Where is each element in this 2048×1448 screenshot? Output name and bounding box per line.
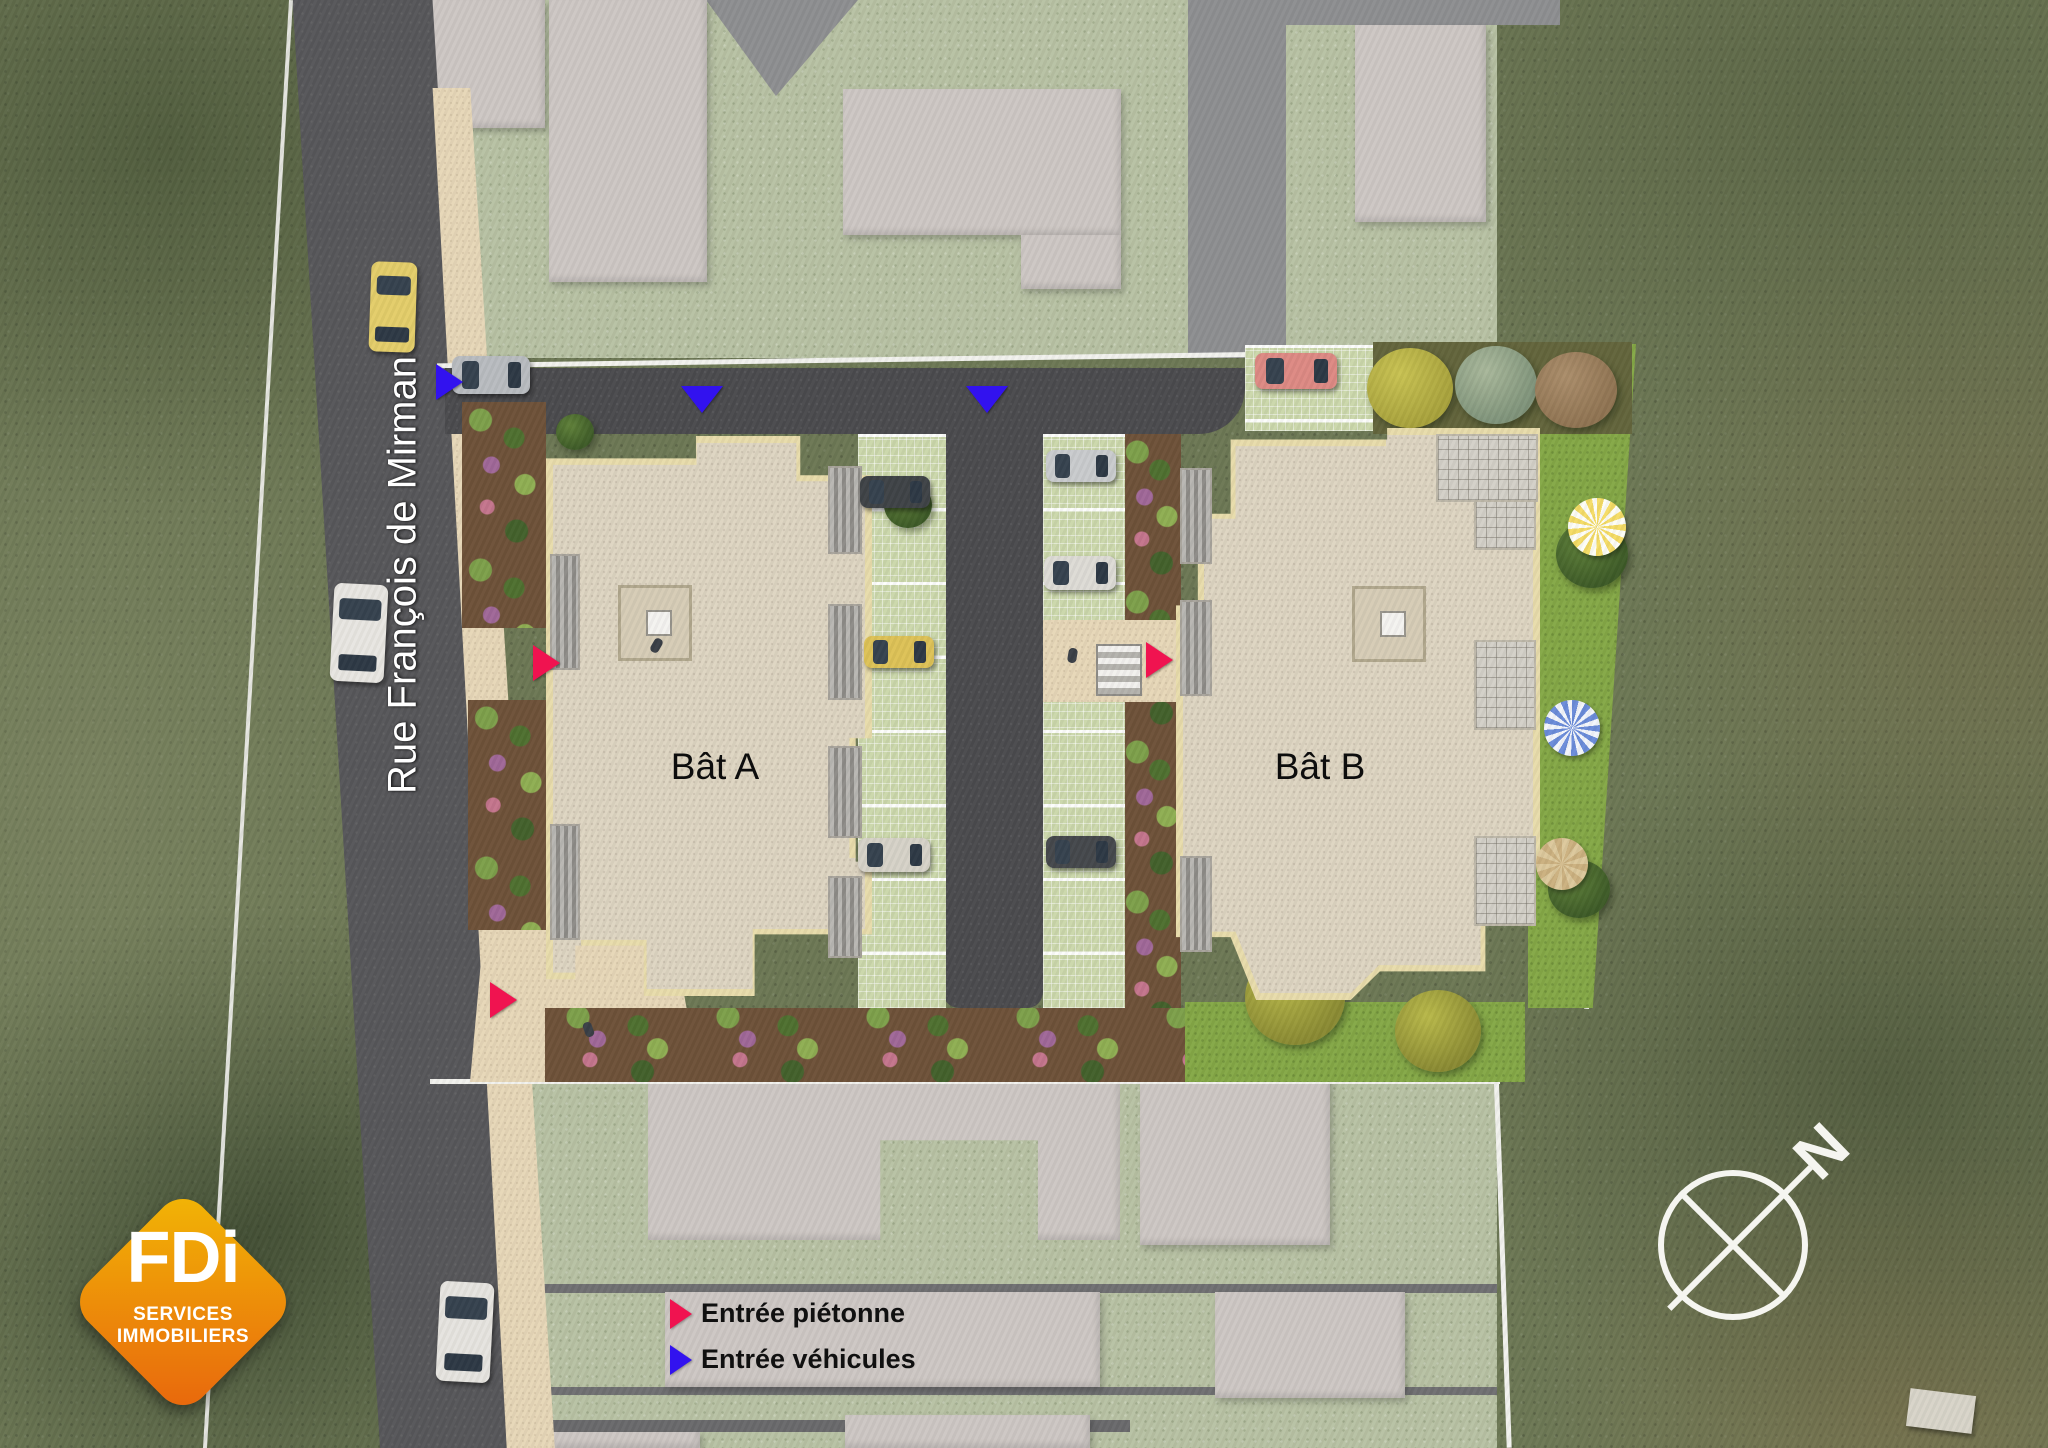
bat-a-terrace [830, 606, 860, 698]
bat-a-terrace [830, 748, 860, 836]
neighbor-building [845, 1415, 1090, 1448]
car-dark [1046, 836, 1116, 868]
bat-b-terrace [1182, 602, 1210, 694]
car-white [1044, 556, 1116, 590]
bat-b-skylight [1380, 611, 1406, 637]
neighbor-building [1215, 1292, 1405, 1398]
fdi-tagline: SERVICES IMMOBILIERS [62, 1304, 304, 1348]
north-driveway [1188, 25, 1286, 358]
compass-ring [1658, 1170, 1808, 1320]
pedestrian-entry-marker [490, 982, 517, 1018]
legend-item-vehicle: Entrée véhicules [670, 1344, 916, 1375]
bat-a-terrace [830, 468, 860, 552]
bat-a-terrace [830, 878, 860, 956]
tree [1395, 990, 1481, 1072]
fdi-logo: FDi SERVICES IMMOBILIERS [62, 1222, 304, 1348]
bat-a-terrace [552, 826, 578, 938]
street-name-label: Rue François de Mirman [381, 356, 426, 794]
north-compass: N [1650, 1118, 1890, 1358]
umbrella-yellow [1568, 498, 1626, 556]
fdi-tagline-line1: SERVICES [62, 1304, 304, 1326]
pedestrian-entry-marker [533, 645, 560, 681]
bat-b-entrance-stairs [1098, 646, 1140, 694]
bat-b-terrace [1476, 838, 1534, 924]
garden-frontage [462, 402, 546, 628]
garden-strip-east [1125, 434, 1181, 1008]
car-yellow [368, 261, 417, 353]
pedestrian-entry-marker [1146, 642, 1173, 678]
neighbor-building [1021, 235, 1121, 289]
car-dark [860, 476, 930, 508]
car-yellow [864, 636, 934, 668]
bat-a-label: Bât A [630, 746, 800, 788]
car-silver [1046, 450, 1116, 482]
building-bat-a [546, 436, 872, 996]
tree [1367, 348, 1453, 428]
legend-item-pedestrian: Entrée piétonne [670, 1298, 905, 1329]
umbrella-tan [1536, 838, 1588, 890]
neighbor-building [549, 0, 707, 282]
umbrella-blue [1544, 700, 1600, 756]
vehicle-entry-marker [681, 386, 723, 413]
site-plan: Bât A Bât B Rue François de Mirman Entré… [0, 0, 2048, 1448]
legend-label: Entrée véhicules [701, 1344, 916, 1375]
bat-a-skylight [646, 610, 672, 636]
tree [1535, 352, 1617, 428]
neighbor-building [1140, 1068, 1330, 1245]
north-road-top [1188, 0, 1560, 25]
car-gray [452, 356, 530, 394]
bat-b-label: Bât B [1235, 746, 1405, 788]
tree [1455, 346, 1537, 424]
building-bat-a-roof [553, 443, 865, 989]
neighbor-building [1355, 25, 1486, 222]
tree [556, 414, 594, 450]
vehicle-entry-marker [436, 364, 463, 400]
car-white [435, 1281, 494, 1384]
bat-b-terrace [1438, 436, 1536, 500]
vehicle-entry-marker [966, 386, 1008, 413]
garden-frontage [468, 700, 552, 930]
bat-b-terrace [1182, 470, 1210, 562]
central-driveway [943, 400, 1043, 1008]
fdi-brand-text: FDi [62, 1222, 304, 1294]
bat-b-terrace [1476, 642, 1534, 728]
farm-building [1906, 1388, 1976, 1434]
garden-strip-south [545, 1008, 1185, 1082]
car-beige [858, 838, 930, 872]
pedestrian-arrow-icon [670, 1299, 692, 1329]
neighbor-building [843, 89, 1121, 235]
car-coral [1255, 353, 1337, 389]
fdi-tagline-line2: IMMOBILIERS [62, 1326, 304, 1348]
parking-row-east [1043, 434, 1125, 1008]
legend-label: Entrée piétonne [701, 1298, 905, 1329]
bat-b-terrace [1182, 858, 1210, 950]
vehicle-arrow-icon [670, 1345, 692, 1375]
